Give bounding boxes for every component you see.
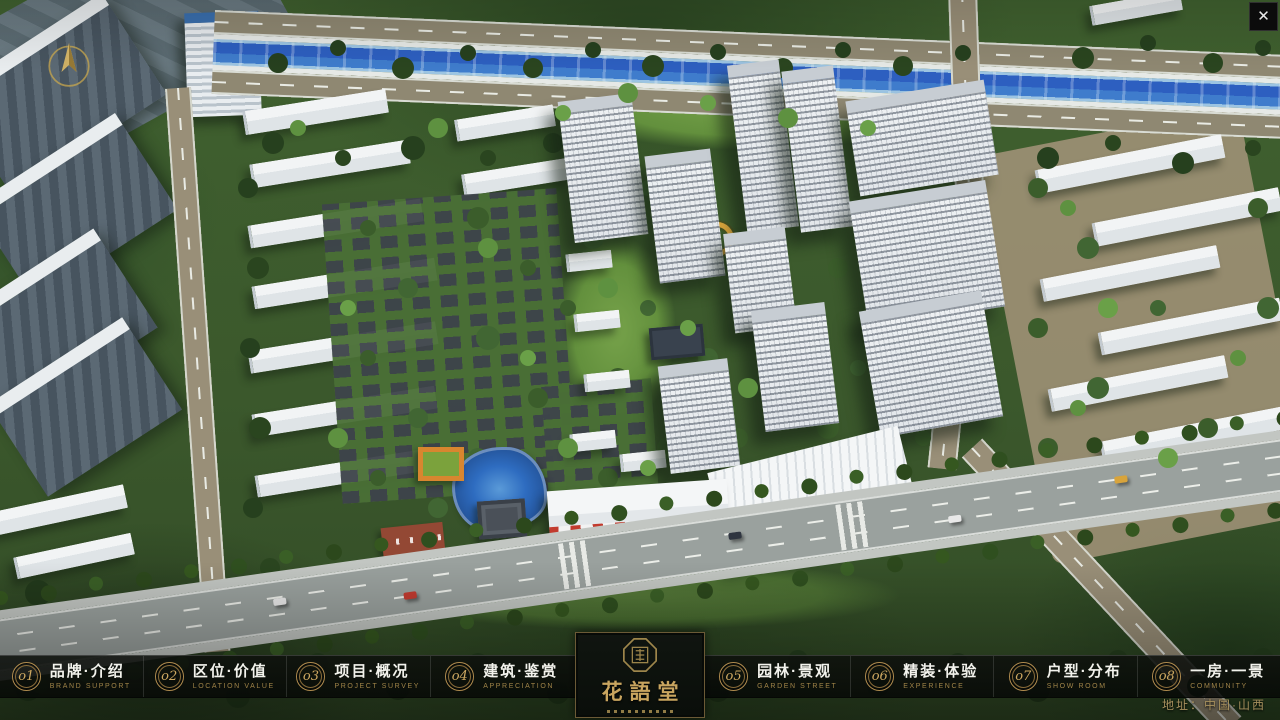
nav-label-zh: 精装·体验 xyxy=(903,664,978,679)
nav-label-en: BRAND SUPPORT xyxy=(50,683,131,690)
nav-label-en: COMMUNITY xyxy=(1190,683,1265,690)
west-road xyxy=(165,87,230,652)
project-address: 地址：中国·山西 xyxy=(1162,696,1266,713)
nav-group-right: o5 园林·景观GARDEN STREET o6 精装·体验EXPERIENCE… xyxy=(707,656,1280,697)
compass-north-icon xyxy=(40,36,98,94)
car xyxy=(948,515,962,524)
nav-label-zh: 户型·分布 xyxy=(1047,664,1122,679)
residential-tower xyxy=(644,148,725,283)
nav-item-garden[interactable]: o5 园林·景观GARDEN STREET xyxy=(707,656,850,697)
crosswalk xyxy=(558,540,594,590)
number-badge: o6 xyxy=(865,662,894,691)
number-badge: o2 xyxy=(155,662,184,691)
nav-group-left: o1 品牌·介绍BRAND SUPPORT o2 区位·价值LOCATION V… xyxy=(0,656,573,697)
east-row-building xyxy=(1089,0,1183,26)
midrise-building xyxy=(619,450,667,473)
nav-label-zh: 品牌·介绍 xyxy=(50,664,131,679)
project-logo[interactable]: 花語堂 xyxy=(575,632,705,718)
residential-tower xyxy=(658,358,741,474)
nav-label-en: EXPERIENCE xyxy=(903,683,978,690)
nav-label-zh: 区位·价值 xyxy=(193,664,275,679)
nav-item-floorplan[interactable]: o7 户型·分布SHOW ROOM xyxy=(993,656,1137,697)
nav-label-en: APPRECIATION xyxy=(483,683,558,690)
clubhouse xyxy=(649,324,706,361)
number-badge: o4 xyxy=(445,662,474,691)
nav-label-en: SHOW ROOM xyxy=(1047,683,1122,690)
app-window: ✕ o1 品牌·介绍BRAND SUPPORT o2 区位·价值LOCATION… xyxy=(0,0,1280,720)
number-badge: o7 xyxy=(1009,662,1038,691)
close-button[interactable]: ✕ xyxy=(1249,2,1278,31)
west-row-building xyxy=(0,484,128,536)
crosswalk xyxy=(835,501,871,551)
number-badge: o1 xyxy=(12,662,41,691)
residential-tower xyxy=(751,302,839,432)
logo-subtitle-line xyxy=(607,710,673,713)
courtyard-gatehouse xyxy=(477,498,528,539)
nav-label-zh: 园林·景观 xyxy=(757,664,837,679)
number-badge: o8 xyxy=(1152,662,1181,691)
row-building xyxy=(249,140,411,189)
nav-label-en: GARDEN STREET xyxy=(757,683,837,690)
seal-emblem-icon xyxy=(623,638,657,672)
nav-label-en: LOCATION VALUE xyxy=(193,683,275,690)
nav-item-project[interactable]: o3 项目·概况PROJECT SURVEY xyxy=(286,656,430,697)
residential-slab-tower xyxy=(859,290,1003,438)
car xyxy=(728,531,742,540)
nav-label-en: PROJECT SURVEY xyxy=(334,683,420,690)
nav-item-room-view[interactable]: o8 一房·一景COMMUNITY xyxy=(1137,656,1280,697)
street-trees xyxy=(0,590,9,606)
nav-label-zh: 建筑·鉴赏 xyxy=(483,664,558,679)
roof-garden-building xyxy=(418,447,464,481)
nav-item-interior[interactable]: o6 精装·体验EXPERIENCE xyxy=(850,656,994,697)
logo-title: 花語堂 xyxy=(595,676,686,706)
number-badge: o5 xyxy=(719,662,748,691)
nav-item-location[interactable]: o2 区位·价值LOCATION VALUE xyxy=(143,656,287,697)
car xyxy=(1114,475,1128,484)
nav-label-zh: 项目·概况 xyxy=(334,664,420,679)
masterplan-3d-viewport[interactable] xyxy=(0,0,1280,720)
west-row-building xyxy=(13,533,135,579)
nav-item-brand[interactable]: o1 品牌·介绍BRAND SUPPORT xyxy=(0,656,143,697)
car xyxy=(403,591,417,600)
car xyxy=(273,597,287,606)
nav-item-architecture[interactable]: o4 建筑·鉴赏APPRECIATION xyxy=(430,656,574,697)
number-badge: o3 xyxy=(296,662,325,691)
nav-label-zh: 一房·一景 xyxy=(1190,664,1265,679)
